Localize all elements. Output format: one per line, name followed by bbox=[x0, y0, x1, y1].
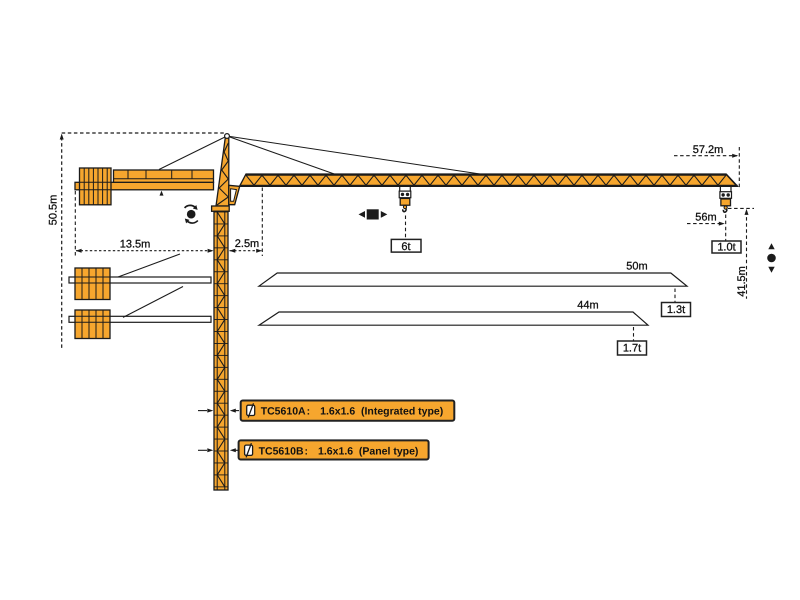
svg-text:1.3t: 1.3t bbox=[667, 304, 685, 316]
svg-text:13.5m: 13.5m bbox=[120, 238, 151, 250]
svg-text:44m: 44m bbox=[577, 300, 598, 312]
svg-text:6t: 6t bbox=[401, 241, 410, 253]
svg-text:TC5610B:1.6x1.6 (Panel type): TC5610B:1.6x1.6 (Panel type) bbox=[259, 446, 419, 458]
svg-text:1.7t: 1.7t bbox=[623, 343, 641, 355]
svg-text:2.5m: 2.5m bbox=[235, 238, 259, 250]
svg-text:TC5610A:1.6x1.6 (Integrated t: TC5610A:1.6x1.6 (Integrated type) bbox=[261, 406, 444, 418]
svg-text:50m: 50m bbox=[626, 261, 647, 273]
svg-text:41.5m: 41.5m bbox=[736, 266, 748, 297]
svg-text:57.2m: 57.2m bbox=[693, 144, 724, 156]
svg-text:56m: 56m bbox=[695, 212, 716, 224]
svg-text:50.5m: 50.5m bbox=[48, 195, 60, 226]
svg-text:1.0t: 1.0t bbox=[717, 242, 735, 254]
